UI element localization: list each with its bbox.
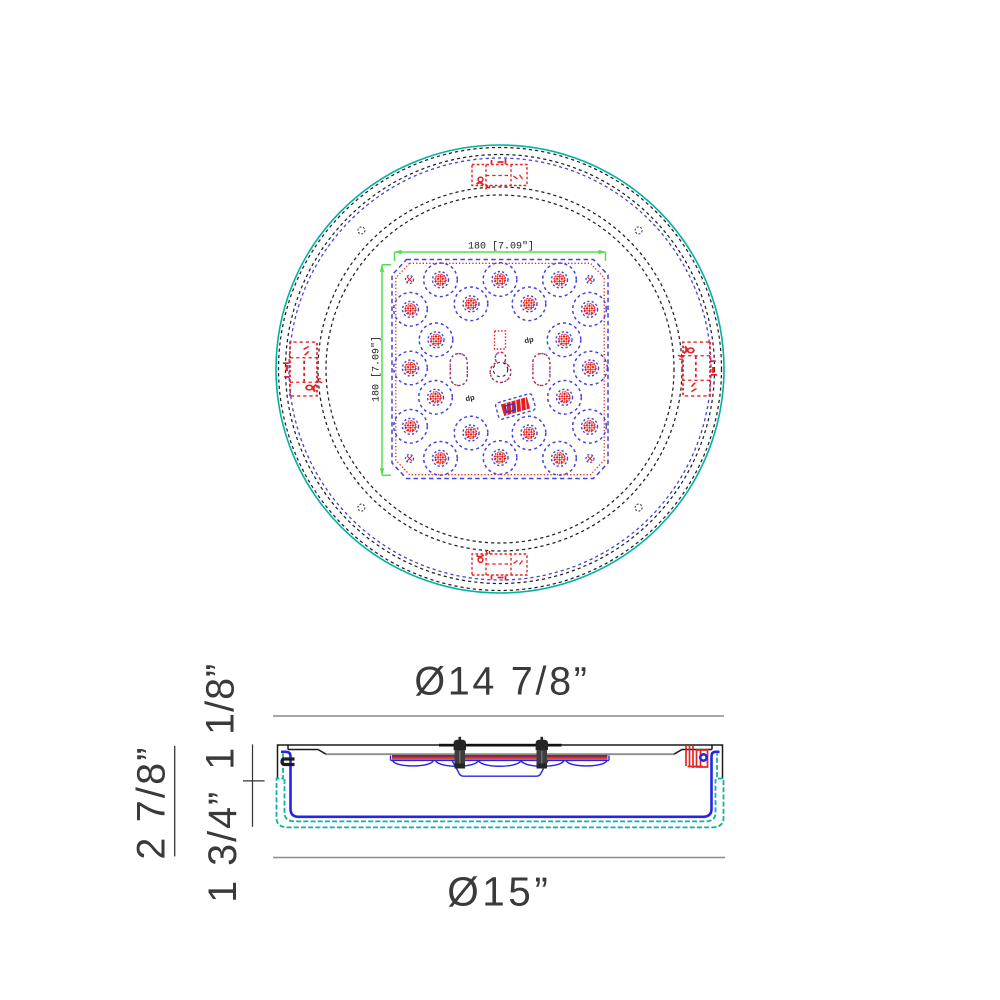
svg-text:1 1/8”: 1 1/8” — [199, 663, 243, 770]
svg-text:Ø14 7/8”: Ø14 7/8” — [414, 660, 589, 704]
svg-text:Ø15”: Ø15” — [447, 869, 551, 915]
svg-text:1 3/4”: 1 3/4” — [201, 790, 245, 903]
svg-text:180 [7.09"]: 180 [7.09"] — [371, 336, 383, 402]
svg-text:2 7/8”: 2 7/8” — [130, 745, 174, 859]
svg-text:180 [7.09"]: 180 [7.09"] — [468, 241, 534, 253]
